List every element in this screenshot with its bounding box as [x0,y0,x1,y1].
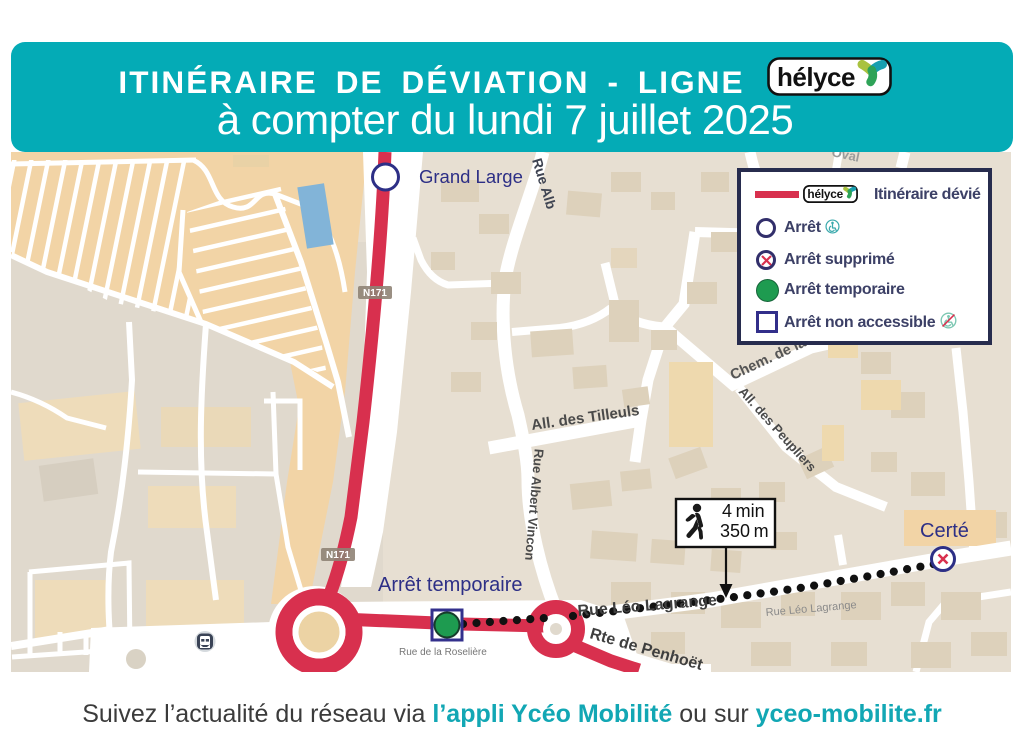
svg-text:350 m: 350 m [720,521,769,541]
svg-text:N171: N171 [326,550,350,561]
svg-text:N171: N171 [363,288,387,299]
svg-text:Rue de la Roselière: Rue de la Roselière [399,647,487,658]
svg-text:Certé: Certé [920,520,969,542]
svg-text:Grand Large: Grand Large [419,166,523,187]
svg-text:hélyce: hélyce [777,62,855,92]
svg-text:hélyce: hélyce [807,187,843,201]
svg-text:4 min: 4 min [722,501,765,521]
svg-text:Arrêt temporaire: Arrêt temporaire [378,574,523,596]
